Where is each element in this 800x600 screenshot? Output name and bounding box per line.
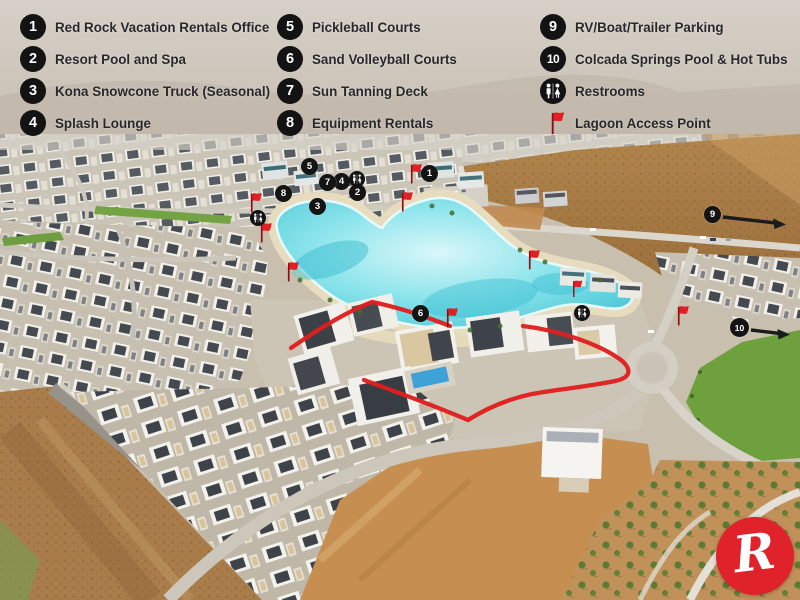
- restrooms-icon: [250, 210, 266, 226]
- legend-label: Splash Lounge: [55, 116, 151, 131]
- legend-number-badge: 9: [540, 14, 566, 40]
- legend-label: Pickleball Courts: [312, 20, 421, 35]
- lagoon-flag-icon: [279, 260, 299, 284]
- legend-item-pool-spa: 2 Resort Pool and Spa: [20, 43, 270, 75]
- legend-item-splash-lounge: 4 Splash Lounge: [20, 107, 270, 139]
- legend-label: Equipment Rentals: [312, 116, 433, 131]
- red-rock-logo: R: [716, 517, 794, 595]
- legend-item-tanning-deck: 7 Sun Tanning Deck: [277, 75, 457, 107]
- restrooms-icon: [574, 305, 590, 321]
- legend-label: Sun Tanning Deck: [312, 84, 428, 99]
- legend-item-lagoon-access: Lagoon Access Point: [540, 107, 788, 139]
- legend-number-badge: 3: [20, 78, 46, 104]
- legend-number-badge: 4: [20, 110, 46, 136]
- legend-item-colcada-springs: 10 Colcada Springs Pool & Hot Tubs: [540, 43, 788, 75]
- legend-label: Restrooms: [575, 84, 645, 99]
- legend-column-2: 5 Pickleball Courts 6 Sand Volleyball Co…: [277, 11, 457, 139]
- legend-label: Kona Snowcone Truck (Seasonal): [55, 84, 270, 99]
- legend-item-restrooms: Restrooms: [540, 75, 788, 107]
- legend-item-pickleball: 5 Pickleball Courts: [277, 11, 457, 43]
- legend-label: Colcada Springs Pool & Hot Tubs: [575, 52, 788, 67]
- resort-map: 1 2 3 4 5 6 7 8 9 10 1 Red Rock Vacation…: [0, 0, 800, 600]
- lagoon-flag-icon: [669, 304, 689, 328]
- legend-item-rv-parking: 9 RV/Boat/Trailer Parking: [540, 11, 788, 43]
- legend-number-badge: 5: [277, 14, 303, 40]
- lagoon-flag-icon: [438, 306, 458, 330]
- legend-column-3: 9 RV/Boat/Trailer Parking 10 Colcada Spr…: [540, 11, 788, 139]
- legend-label: Lagoon Access Point: [575, 116, 711, 131]
- map-marker-1: 1: [421, 165, 438, 182]
- map-marker-9: 9: [704, 206, 721, 223]
- restrooms-icon: [540, 78, 566, 105]
- legend-number-badge: 10: [540, 46, 566, 72]
- lagoon-flag-icon: [393, 190, 413, 214]
- restrooms-icon: [349, 171, 365, 187]
- lagoon-flag-icon: [566, 279, 583, 299]
- legend-label: RV/Boat/Trailer Parking: [575, 20, 724, 35]
- legend-item-volleyball: 6 Sand Volleyball Courts: [277, 43, 457, 75]
- legend-label: Red Rock Vacation Rentals Office: [55, 20, 269, 35]
- map-marker-8: 8: [275, 185, 292, 202]
- legend-item-snowcone: 3 Kona Snowcone Truck (Seasonal): [20, 75, 270, 107]
- legend-number-badge: 2: [20, 46, 46, 72]
- legend-number-badge: 7: [277, 78, 303, 104]
- legend-number-badge: 1: [20, 14, 46, 40]
- legend-item-office: 1 Red Rock Vacation Rentals Office: [20, 11, 270, 43]
- map-marker-3: 3: [309, 198, 326, 215]
- map-marker-5: 5: [301, 158, 318, 175]
- map-marker-10: 10: [730, 318, 749, 337]
- legend-item-equipment-rentals: 8 Equipment Rentals: [277, 107, 457, 139]
- map-marker-6: 6: [412, 305, 429, 322]
- map-marker-7: 7: [319, 174, 336, 191]
- legend-column-1: 1 Red Rock Vacation Rentals Office 2 Res…: [20, 11, 270, 139]
- red-flag-icon: [540, 110, 566, 137]
- legend-number-badge: 6: [277, 46, 303, 72]
- legend-label: Sand Volleyball Courts: [312, 52, 457, 67]
- lagoon-flag-icon: [402, 162, 422, 186]
- lagoon-flag-icon: [520, 248, 540, 272]
- legend-number-badge: 8: [277, 110, 303, 136]
- legend-label: Resort Pool and Spa: [55, 52, 186, 67]
- logo-letter: R: [731, 526, 778, 581]
